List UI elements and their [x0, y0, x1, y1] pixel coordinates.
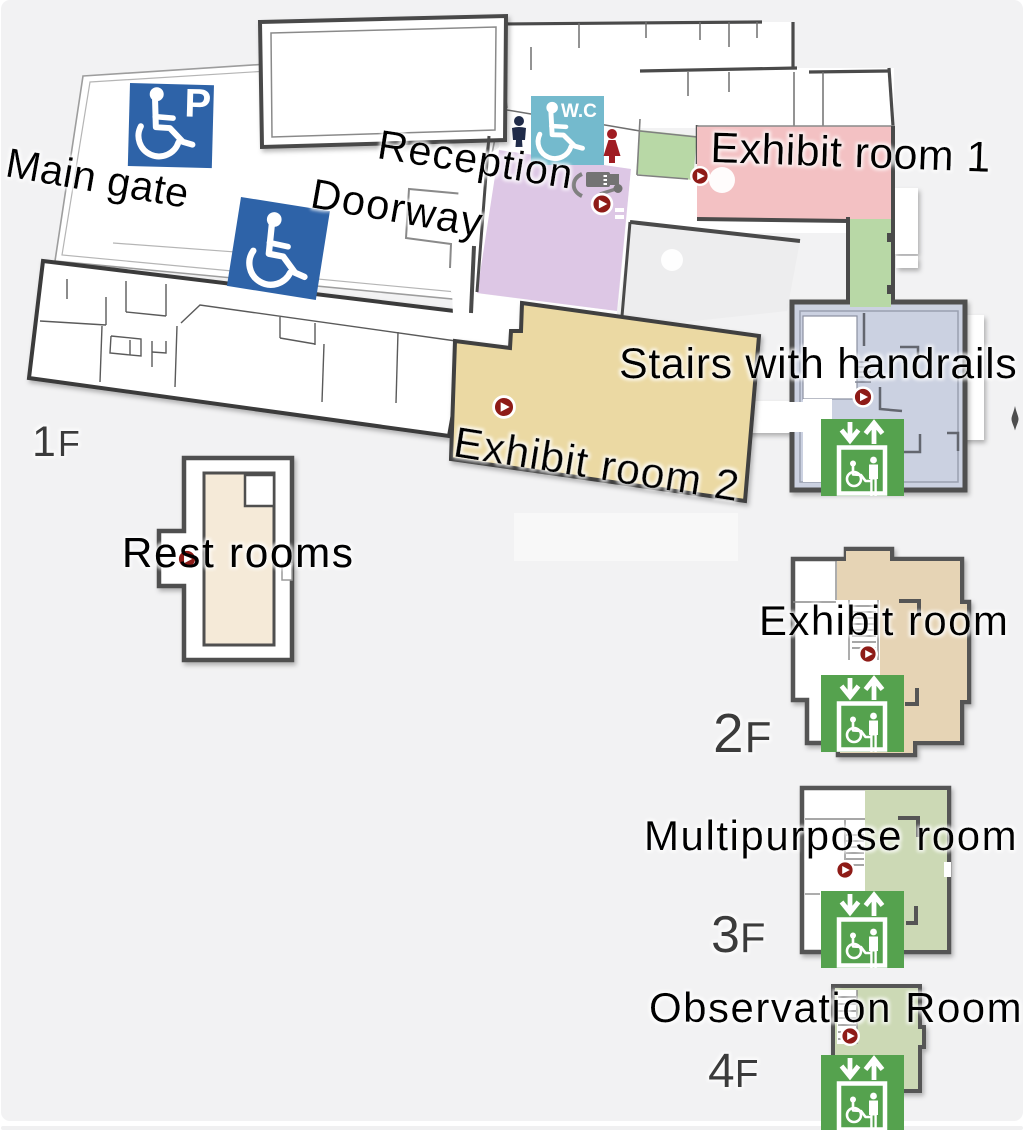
svg-text:Multipurpose room: Multipurpose room — [644, 812, 1018, 859]
svg-text:4F: 4F — [708, 1045, 759, 1098]
svg-text:Rest rooms: Rest rooms — [122, 529, 355, 576]
svg-text:Observation Room: Observation Room — [649, 984, 1023, 1031]
svg-text:P: P — [184, 81, 212, 126]
svg-text:3F: 3F — [711, 906, 766, 964]
svg-text:W.C: W.C — [561, 101, 597, 122]
svg-text:Exhibit room: Exhibit room — [759, 597, 1009, 644]
svg-text:Exhibit room 1: Exhibit room 1 — [710, 124, 992, 182]
svg-text:Stairs with handrails: Stairs with handrails — [619, 340, 1017, 388]
